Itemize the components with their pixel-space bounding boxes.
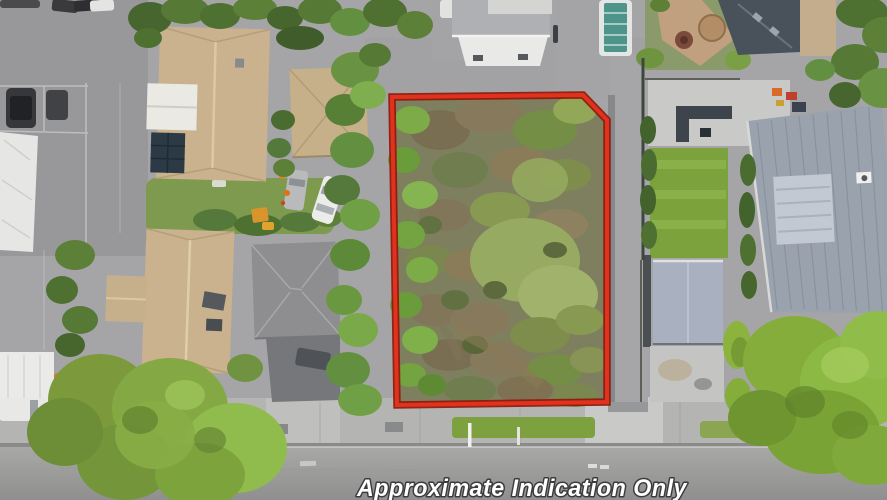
pedestrian bbox=[553, 25, 558, 43]
aerial-photo: Approximate Indication Only bbox=[0, 0, 887, 500]
house-tan-north bbox=[145, 26, 270, 181]
house-gray-hip bbox=[251, 242, 340, 339]
chimney bbox=[235, 59, 244, 68]
shed bbox=[641, 255, 724, 402]
bin bbox=[385, 422, 403, 432]
front-lawn bbox=[146, 178, 342, 236]
teal-caravan bbox=[599, 0, 632, 56]
paver-circle bbox=[699, 15, 725, 41]
solar-panels bbox=[150, 132, 185, 173]
lawn-east bbox=[650, 148, 728, 258]
bbq bbox=[700, 128, 711, 137]
digger-toy bbox=[251, 207, 269, 223]
house-metal-roof-east bbox=[747, 104, 887, 321]
house-slate-northeast bbox=[718, 0, 836, 56]
neighbour-patio bbox=[800, 0, 836, 56]
vacant-lot bbox=[388, 95, 610, 407]
cone bbox=[281, 201, 285, 205]
roof-window bbox=[206, 319, 222, 332]
digger-toy bbox=[262, 222, 274, 230]
caption-watermark: Approximate Indication Only bbox=[356, 475, 688, 500]
house-white-north bbox=[452, 0, 552, 66]
hi-vis-worker bbox=[284, 190, 290, 196]
aerial-photo-canvas: Approximate Indication Only bbox=[0, 0, 887, 500]
clerestory-roof bbox=[773, 174, 834, 245]
